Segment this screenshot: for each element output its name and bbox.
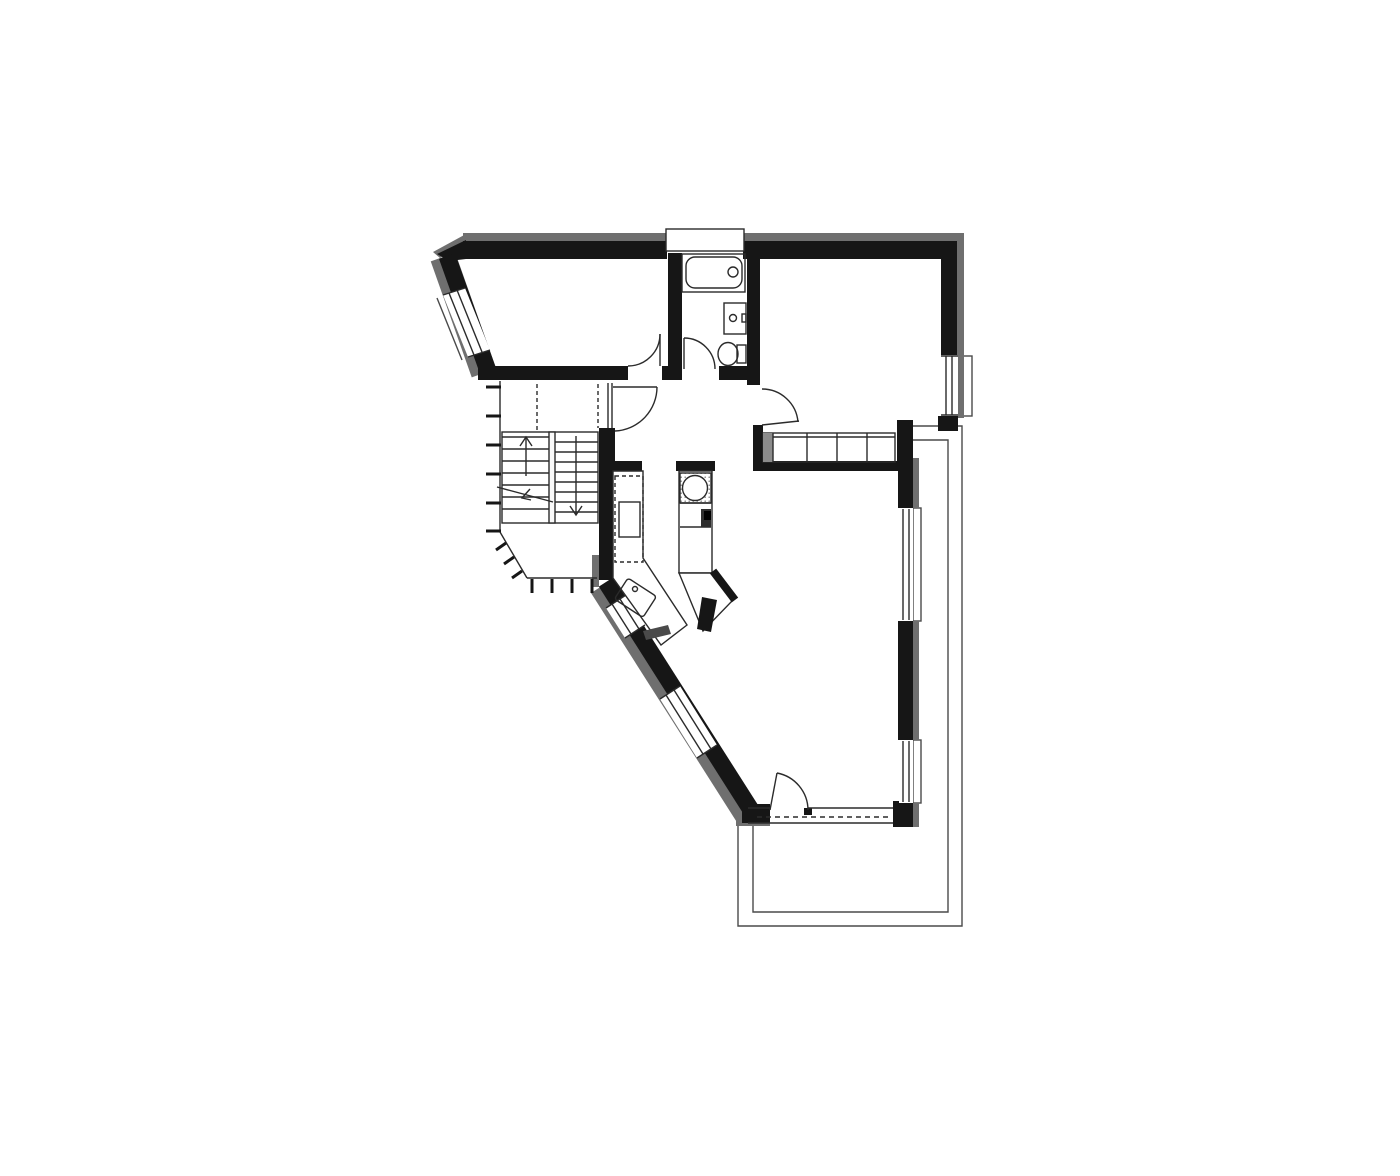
wall-bathroom-east xyxy=(747,253,760,385)
door-bathroom-swing xyxy=(684,338,715,369)
wall-insulation-east-3 xyxy=(913,803,919,827)
wall-insulation-east-2 xyxy=(913,621,919,740)
door-bedroom2-leaf xyxy=(762,421,799,425)
railing-chamfer xyxy=(500,532,527,578)
bathroom-window-box xyxy=(666,229,744,251)
bathtub-surround xyxy=(682,254,745,292)
door-terrace-leaf xyxy=(770,773,777,810)
floor-plan-drawing xyxy=(433,229,972,926)
window-east-2 xyxy=(899,740,913,803)
door-bedroom1-swing xyxy=(628,334,660,366)
window-west-diagonal xyxy=(443,288,490,357)
wall-north-left xyxy=(463,241,667,259)
wall-southwest-corner xyxy=(742,804,770,823)
window-sill-box-east-1 xyxy=(913,508,921,621)
door-hall-swing xyxy=(615,387,657,431)
wall-bathroom-west xyxy=(668,253,682,380)
wall-east-upper xyxy=(941,241,957,355)
wall-corridor-south-2 xyxy=(676,461,715,471)
wall-east-living-1 xyxy=(898,458,913,508)
wall-insulation-east-upper xyxy=(957,233,964,418)
window-northeast xyxy=(941,355,958,416)
wall-east-upper-corner xyxy=(938,416,958,431)
bathtub xyxy=(686,257,742,288)
washbasin-tap xyxy=(742,314,746,322)
door-terrace-swing xyxy=(777,773,808,810)
wall-east-living-2 xyxy=(898,621,913,740)
floor-plan-svg xyxy=(0,0,1400,1176)
railing-baluster xyxy=(512,571,522,578)
terrace-edge-outer xyxy=(738,426,962,926)
floor-plan-page xyxy=(0,0,1400,1176)
kitchen-oven-door xyxy=(704,511,711,520)
wall-north-right xyxy=(743,241,957,259)
stair-stringer xyxy=(549,432,555,523)
bathtub-drain xyxy=(728,267,738,277)
kitchen-appliance-drum xyxy=(683,476,708,501)
wardrobe-end-cabinet xyxy=(763,433,773,462)
wall-east-living-3 xyxy=(893,801,913,827)
window-east-1 xyxy=(899,508,913,621)
door-bedroom2-swing xyxy=(762,389,798,422)
railing-baluster xyxy=(504,557,514,564)
railing-baluster xyxy=(496,543,506,550)
washbasin xyxy=(724,303,746,334)
wall-insulation-east-1 xyxy=(913,458,919,508)
toilet-bowl xyxy=(718,343,738,366)
wall-bedroom1-south-a xyxy=(478,366,628,380)
window-sill-box-east-2 xyxy=(913,740,921,803)
washbasin-drain xyxy=(730,315,737,322)
